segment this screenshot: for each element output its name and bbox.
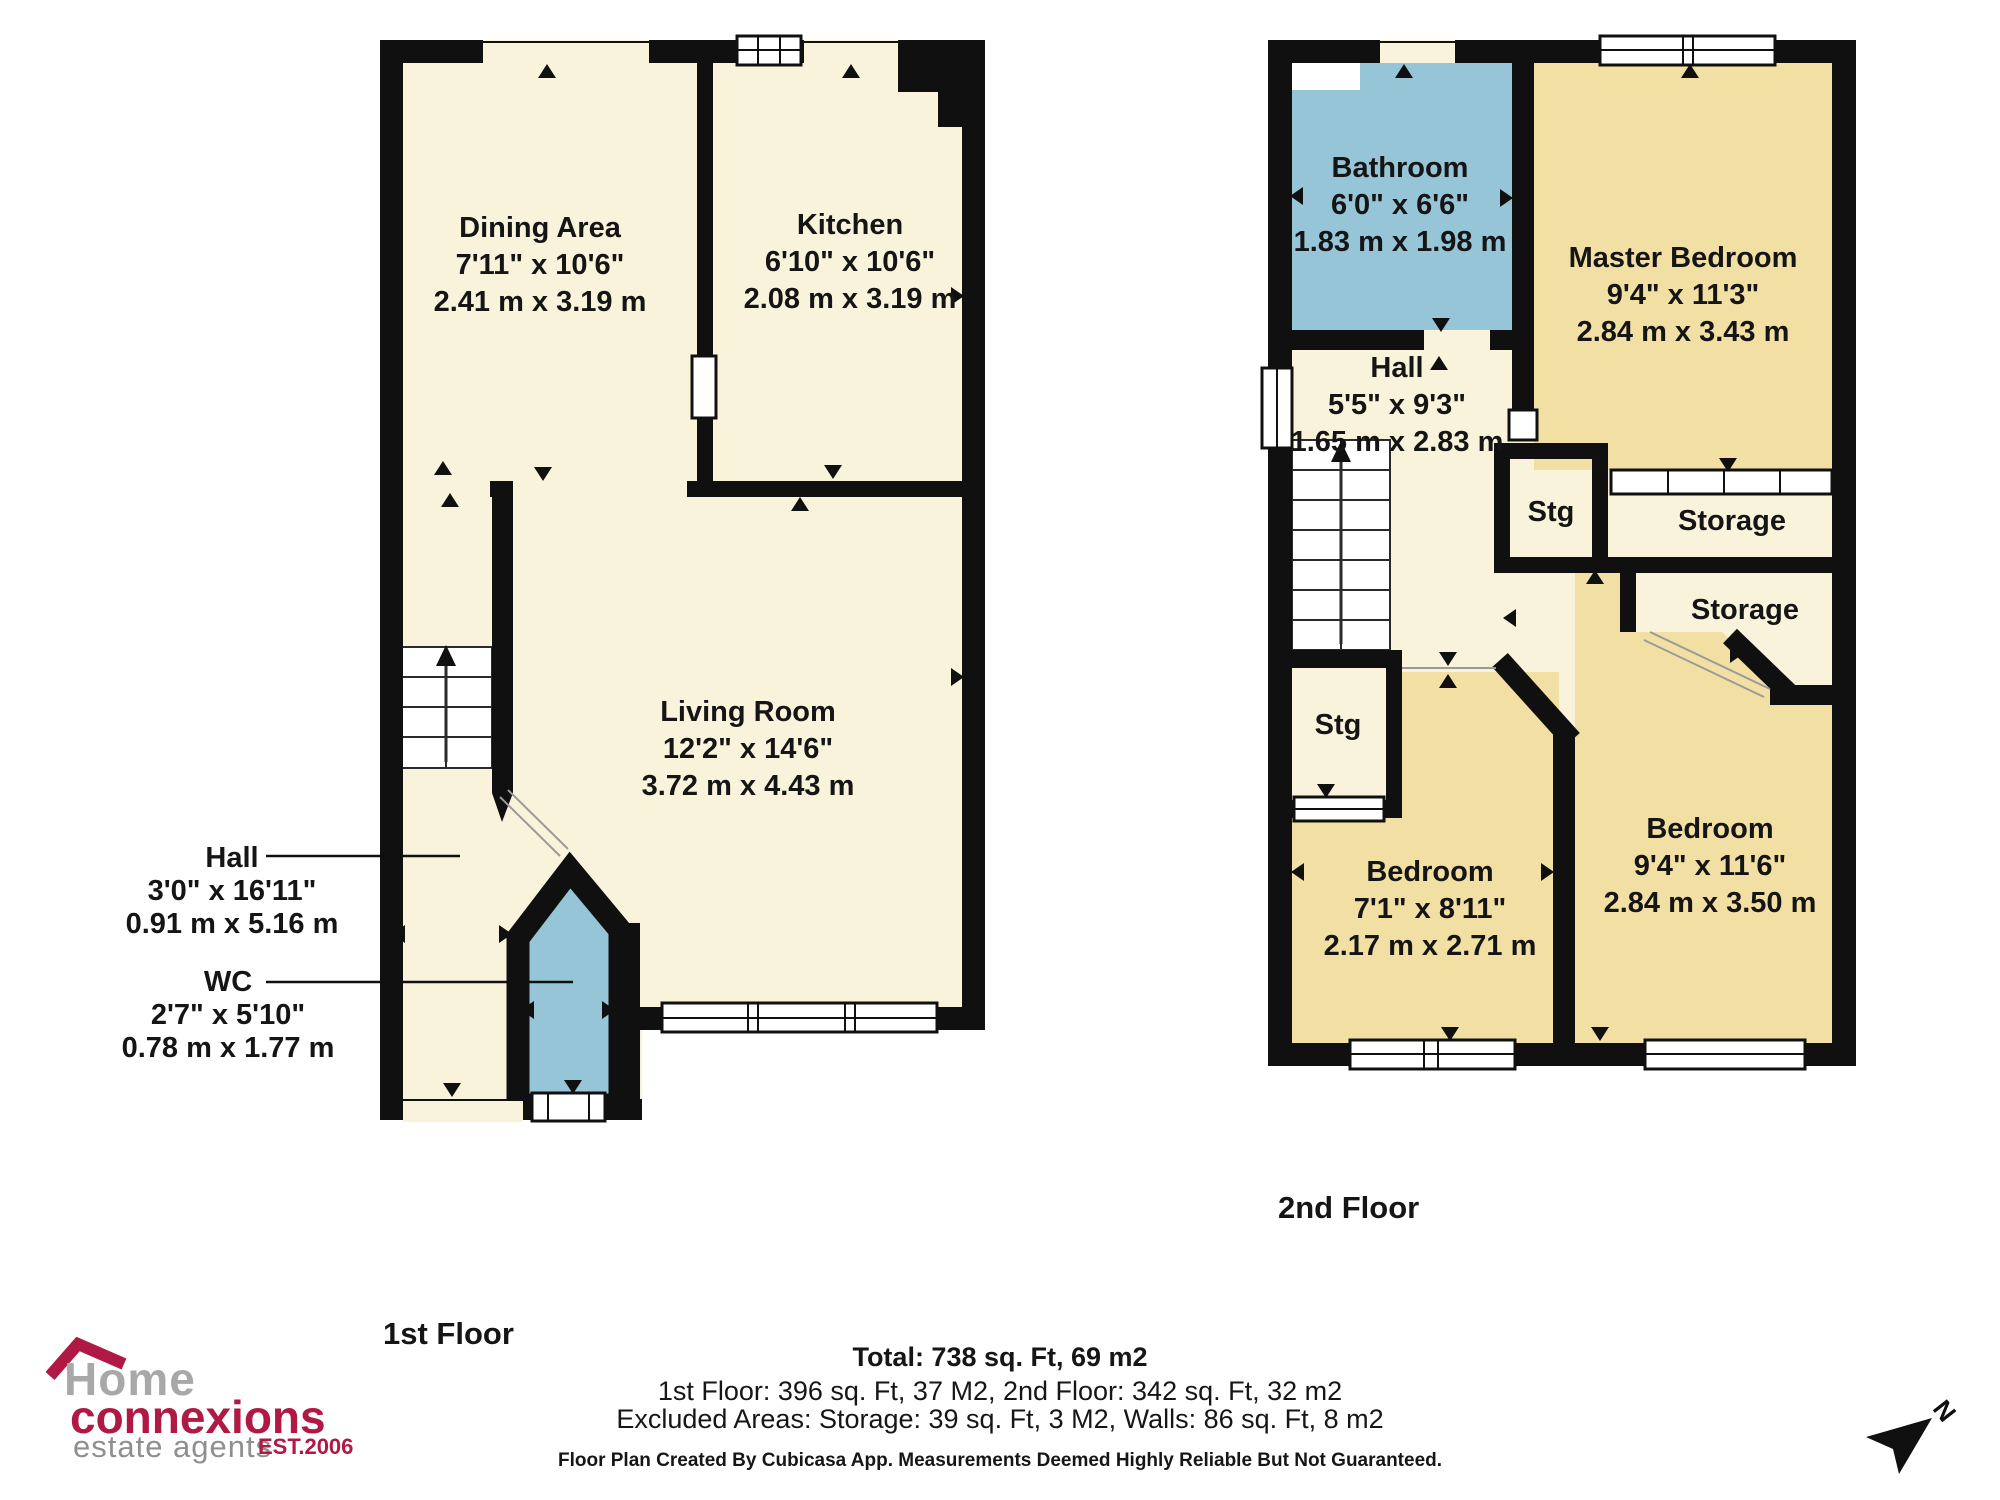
room-label-stg-upper: Stg [1528,494,1575,531]
floorplan-page: N Dining Area 7'11" x 10'6" 2.41 m x 3.1… [0,0,2000,1500]
room-label-storage-upper: Storage [1678,503,1786,540]
room-label-master-bedroom: Master Bedroom 9'4" x 11'3" 2.84 m x 3.4… [1569,240,1798,351]
room-label-dining: Dining Area 7'11" x 10'6" 2.41 m x 3.19 … [434,210,647,321]
master-door-frame [1509,410,1537,440]
room-label-wc: WC 2'7" x 5'10" 0.78 m x 1.77 m [122,966,335,1065]
wardrobe-front [1611,470,1832,494]
pocket-door-frame [692,356,716,418]
room-label-stg-lower: Stg [1315,707,1362,744]
floor1-floor-area [380,40,985,1030]
floor1-plan [266,36,985,1122]
summary-total: Total: 738 sq. Ft, 69 m2 [0,1342,2000,1373]
logo-established-year: EST.2006 [258,1434,353,1460]
room-wc [518,870,620,1105]
wc-window [532,1093,605,1121]
room-label-bedroom-small: Bedroom 7'1" x 8'11" 2.17 m x 2.71 m [1324,854,1537,965]
room-label-hall1: Hall 3'0" x 16'11" 0.91 m x 5.16 m [126,842,339,941]
floor2-staircase [1292,440,1390,650]
floor1-staircase [400,645,492,768]
room-label-living: Living Room 12'2" x 14'6" 3.72 m x 4.43 … [642,694,855,805]
floor2-title: 2nd Floor [1278,1190,1419,1226]
logo-word-estate-agents: estate agents [73,1429,272,1465]
room-label-kitchen: Kitchen 6'10" x 10'6" 2.08 m x 3.19 m [744,207,957,318]
room-label-hall2: Hall 5'5" x 9'3" 1.65 m x 2.83 m [1291,350,1504,461]
room-label-bathroom: Bathroom 6'0" x 6'6" 1.83 m x 1.98 m [1294,150,1507,261]
room-label-storage-lower: Storage [1691,592,1799,629]
room-label-bedroom-large: Bedroom 9'4" x 11'6" 2.84 m x 3.50 m [1604,811,1817,922]
floorplan-drawing: N [0,0,2000,1500]
